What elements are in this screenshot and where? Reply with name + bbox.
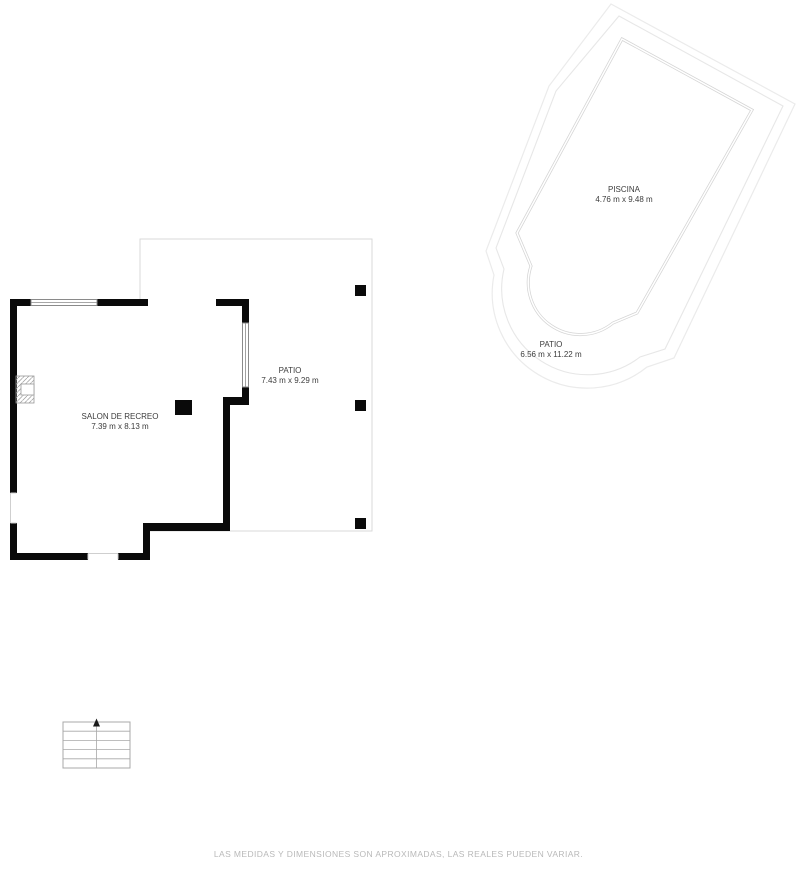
- fireplace: [16, 376, 34, 403]
- room-name: SALON DE RECREO: [40, 412, 200, 422]
- column: [355, 400, 366, 411]
- room-dimensions: 7.43 m x 9.29 m: [210, 376, 370, 386]
- room-dimensions: 7.39 m x 8.13 m: [40, 422, 200, 432]
- floor-plan-drawing: [0, 0, 797, 872]
- floor-plan-canvas: SALON DE RECREO 7.39 m x 8.13 m PATIO 7.…: [0, 0, 797, 872]
- room-label-pool-patio: PATIO 6.56 m x 11.22 m: [471, 340, 631, 360]
- room-label-salon: SALON DE RECREO 7.39 m x 8.13 m: [40, 412, 200, 432]
- room-name: PATIO: [471, 340, 631, 350]
- room-label-piscina: PISCINA 4.76 m x 9.48 m: [544, 185, 704, 205]
- room-name: PATIO: [210, 366, 370, 376]
- disclaimer-text: LAS MEDIDAS Y DIMENSIONES SON APROXIMADA…: [0, 849, 797, 859]
- room-dimensions: 4.76 m x 9.48 m: [544, 195, 704, 205]
- stairs: [63, 719, 130, 769]
- column: [355, 518, 366, 529]
- room-label-patio: PATIO 7.43 m x 9.29 m: [210, 366, 370, 386]
- window-top: [31, 300, 97, 306]
- room-dimensions: 6.56 m x 11.22 m: [471, 350, 631, 360]
- room-name: PISCINA: [544, 185, 704, 195]
- column: [355, 285, 366, 296]
